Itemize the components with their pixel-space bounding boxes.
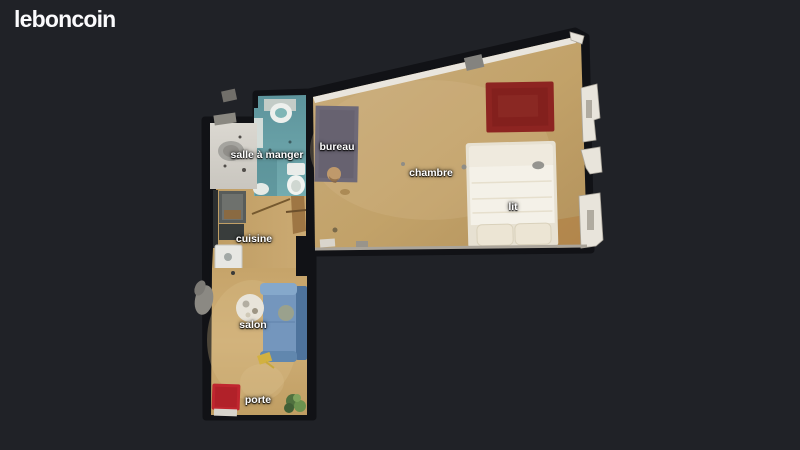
door-leaf	[291, 193, 306, 234]
bed	[466, 141, 559, 248]
sculpture-head	[327, 167, 341, 181]
floorplan-3d-viewer[interactable]: salle à manger bureau chambre lit cuisin…	[0, 0, 800, 450]
room-chambre	[310, 32, 603, 249]
washing-machine	[215, 245, 242, 270]
floorplan-svg	[0, 0, 800, 450]
sofa-cushion	[278, 305, 294, 321]
sofa	[260, 283, 307, 362]
bedroom-rug	[486, 81, 555, 132]
toilet	[287, 163, 305, 195]
coffee-table	[236, 294, 264, 322]
room-dining-white	[210, 89, 257, 189]
room-salle-a-manger	[253, 95, 306, 196]
room-cuisine	[212, 189, 306, 270]
doormat	[212, 384, 241, 411]
sink	[270, 103, 292, 123]
